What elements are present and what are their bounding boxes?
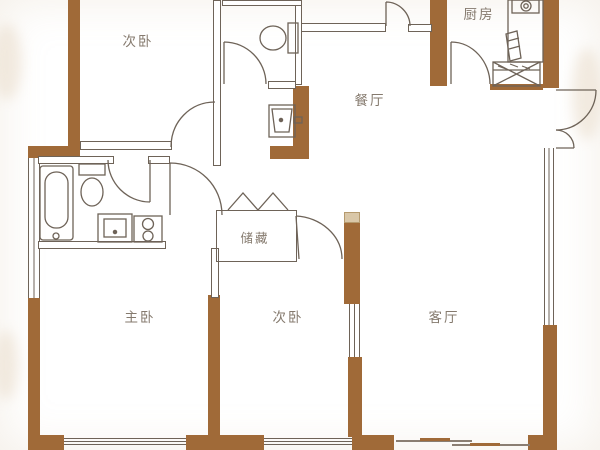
master-bedroom-door-arc [170,163,222,215]
washing-machine-door [143,219,154,230]
room-label-storage: 储藏 [240,228,269,247]
vanity-counter [98,214,132,242]
vanity-basin [104,219,126,237]
room-label-living-room: 客厅 [429,306,460,326]
basin-drain [279,118,282,121]
room-label-kitchen: 厨房 [464,3,495,23]
vanity-drain [113,230,116,233]
room-label-dining: 餐厅 [355,89,386,109]
floor-plan: 次卧 厨房 餐厅 储藏 主卧 次卧 客厅 [0,0,600,450]
bedroom2-door-arc [296,216,342,259]
bedroom1-door-arc [171,102,215,147]
room-label-bedroom-top-left: 次卧 [123,30,154,50]
entry-door-large-arc [556,90,596,130]
toilet-tank [79,164,105,175]
toilet2-bowl [260,26,286,50]
bathtub-inner [45,172,68,228]
north-door-arc [386,2,410,26]
room-label-bedroom-bottom: 次卧 [273,306,304,326]
bathroom-door-arc [108,160,150,202]
bathtub-drain [53,233,59,239]
kitchen-door-arc [451,42,490,84]
tall-cabinet-cross [493,62,540,86]
entry-door-small-arc [556,130,574,148]
room-label-master-bedroom: 主卧 [125,306,156,326]
toilet2-tank [288,23,298,53]
bifold-closet-doors [228,193,288,210]
top-bathroom-door-arc [224,42,266,84]
toilet-bowl [81,178,103,206]
stove-burner-center [524,4,528,8]
washing-machine-dial [143,231,153,241]
kitchen-counter [508,0,543,62]
stove-burner [521,1,531,11]
doors-and-fixtures-layer [0,0,600,450]
